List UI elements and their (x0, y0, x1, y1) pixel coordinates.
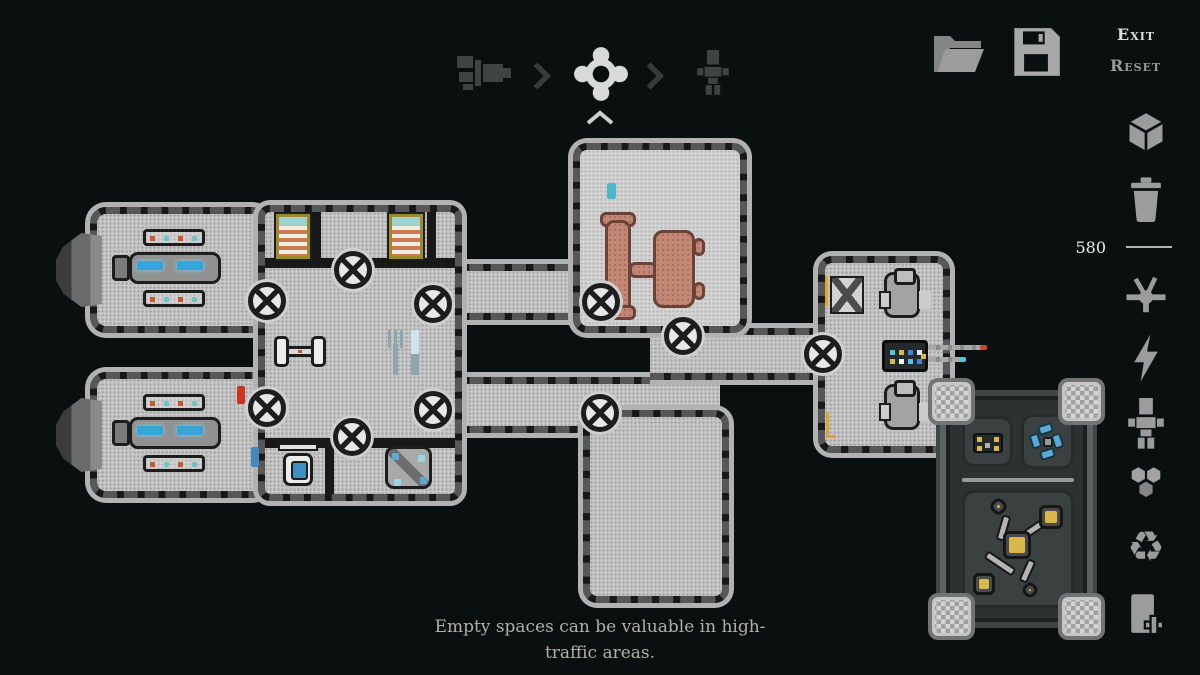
bunk-bed[interactable] (389, 214, 423, 259)
airlock-door[interactable] (414, 285, 452, 323)
pipe-node (973, 573, 995, 595)
captain-table[interactable] (693, 282, 705, 300)
interior-wall (325, 438, 334, 494)
module-rail (1087, 414, 1093, 600)
engine-frame-bottom (143, 455, 205, 472)
module-slot[interactable] (962, 490, 1074, 608)
antenna (928, 345, 982, 350)
engine-block[interactable] (115, 394, 227, 472)
captain-table[interactable] (693, 238, 705, 256)
engine-nose (112, 255, 130, 281)
pipe-node (1003, 531, 1031, 559)
module-corner-block (928, 593, 975, 640)
scanner-machine[interactable] (830, 276, 864, 314)
dumbbell[interactable] (274, 336, 326, 367)
engine-glow (177, 426, 203, 435)
captain-table[interactable] (653, 230, 695, 308)
thruster-bottom[interactable] (56, 398, 102, 472)
interior-wall (312, 212, 321, 258)
engine-glow (177, 261, 203, 270)
engine-glow (137, 261, 163, 270)
airlock-door[interactable] (664, 317, 702, 355)
crew-icon[interactable] (697, 50, 729, 96)
marker-bracket (825, 276, 833, 306)
pipe-node (1020, 580, 1040, 600)
ship-exterior-icon[interactable] (457, 52, 511, 92)
pipe-node (1039, 505, 1063, 529)
pilot-chair[interactable] (884, 384, 920, 430)
fork[interactable] (388, 330, 403, 375)
folder-open-icon[interactable] (932, 30, 986, 74)
thruster-top[interactable] (56, 233, 102, 307)
washroom-shelf[interactable] (278, 443, 318, 451)
antenna-tip-red (980, 345, 987, 350)
engine-room-top[interactable] (90, 207, 268, 333)
module-corner-block (928, 378, 975, 425)
generator-unit (973, 433, 1003, 453)
upper-corridor[interactable] (448, 264, 590, 320)
engine-block[interactable] (115, 229, 227, 307)
hint-text: Empty spaces can be valuable in high-tra… (420, 614, 780, 667)
empty-bottom-room[interactable] (583, 410, 729, 603)
control-console[interactable] (882, 340, 928, 372)
module-corner-block (1058, 593, 1105, 640)
module-corner-block (1058, 378, 1105, 425)
save-disk-icon[interactable] (1010, 26, 1062, 78)
game-screen: { "top_nav": { "steps": [ { "icon": "shi… (0, 0, 1200, 675)
chevron-up-icon[interactable] (585, 110, 615, 126)
marker-bracket (826, 412, 836, 438)
recycler-machine[interactable] (385, 446, 432, 489)
engine-frame-top (143, 394, 205, 411)
antenna-tip-cyan (960, 357, 966, 362)
bunk-bed[interactable] (276, 214, 310, 259)
pipe (1019, 558, 1037, 584)
airlock-door[interactable] (414, 391, 452, 429)
engine-frame-top (143, 229, 205, 246)
fan-unit (1030, 424, 1066, 460)
airlock-door[interactable] (333, 418, 371, 456)
module-divider (962, 478, 1074, 482)
chevron-right-icon (531, 61, 553, 91)
airlock-door[interactable] (334, 251, 372, 289)
pilot-chair[interactable] (884, 272, 920, 318)
knife[interactable] (411, 330, 419, 375)
interior-wall (427, 212, 436, 258)
fire-hose[interactable] (237, 386, 245, 404)
ship-systems-gear-icon[interactable] (572, 45, 630, 103)
chevron-right-icon (644, 61, 666, 91)
engine-glow (137, 426, 163, 435)
wall-tool[interactable] (251, 447, 259, 467)
airlock-door[interactable] (248, 389, 286, 427)
airlock-door[interactable] (804, 335, 842, 373)
airlock-door[interactable] (581, 394, 619, 432)
central-quarters[interactable] (258, 205, 462, 501)
toilet[interactable] (283, 453, 313, 486)
airlock-door[interactable] (582, 283, 620, 321)
engine-nose (112, 420, 130, 446)
wall-device[interactable] (607, 183, 616, 199)
airlock-door[interactable] (248, 282, 286, 320)
antenna (928, 357, 962, 362)
engine-frame-bottom (143, 290, 205, 307)
external-systems-module[interactable] (928, 378, 1105, 640)
pipe-node (988, 496, 1009, 517)
